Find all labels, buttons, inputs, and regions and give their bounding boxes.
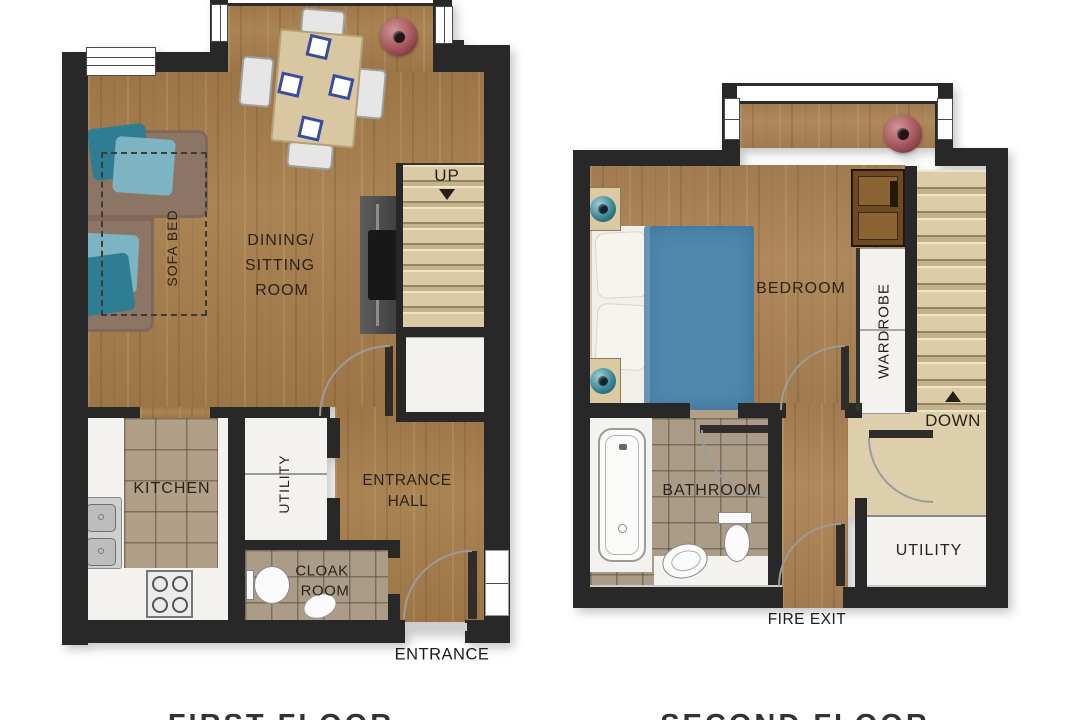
dining-room-label-line3: ROOM	[255, 282, 309, 300]
dining-room-label-line2: SITTING	[245, 257, 315, 275]
stairs-up-label: UP	[434, 166, 460, 186]
stairs-down-label: DOWN	[925, 411, 981, 431]
cloak-room-label-line1: CLOAK	[295, 563, 348, 580]
door-swing-overlay	[0, 0, 1080, 720]
stairs-down-arrow-icon	[945, 391, 961, 402]
entrance-label: ENTRANCE	[395, 646, 490, 665]
entrance-hall-label-line1: ENTRANCE	[362, 472, 451, 490]
dining-room-label-line1: DINING/	[247, 232, 314, 250]
bathroom-label: BATHROOM	[662, 482, 761, 500]
floor-plan-canvas: DINING/ SITTING ROOM SOFA BED UP KITCHEN…	[0, 0, 1080, 720]
first-floor-caption: FIRST FLOOR	[168, 709, 394, 720]
stairs-up-arrow-icon	[439, 189, 455, 200]
door-arc	[404, 551, 472, 619]
cloak-room-label-line2: ROOM	[301, 583, 350, 600]
door-arc	[781, 346, 845, 410]
fire-exit-label: FIRE EXIT	[768, 611, 847, 629]
sofa-bed-label: SOFA BED	[164, 209, 180, 286]
bedroom-label: BEDROOM	[756, 280, 846, 298]
door-arc	[779, 524, 841, 586]
wardrobe-label: WARDROBE	[876, 283, 893, 379]
entrance-hall-label-line2: HALL	[388, 493, 429, 511]
door-arc	[869, 438, 933, 502]
kitchen-label: KITCHEN	[133, 480, 210, 498]
door-arc	[320, 346, 390, 416]
second-floor-caption: SECOND FLOOR	[660, 709, 930, 720]
utility-label: UTILITY	[276, 454, 292, 513]
utility-label: UTILITY	[896, 542, 963, 560]
